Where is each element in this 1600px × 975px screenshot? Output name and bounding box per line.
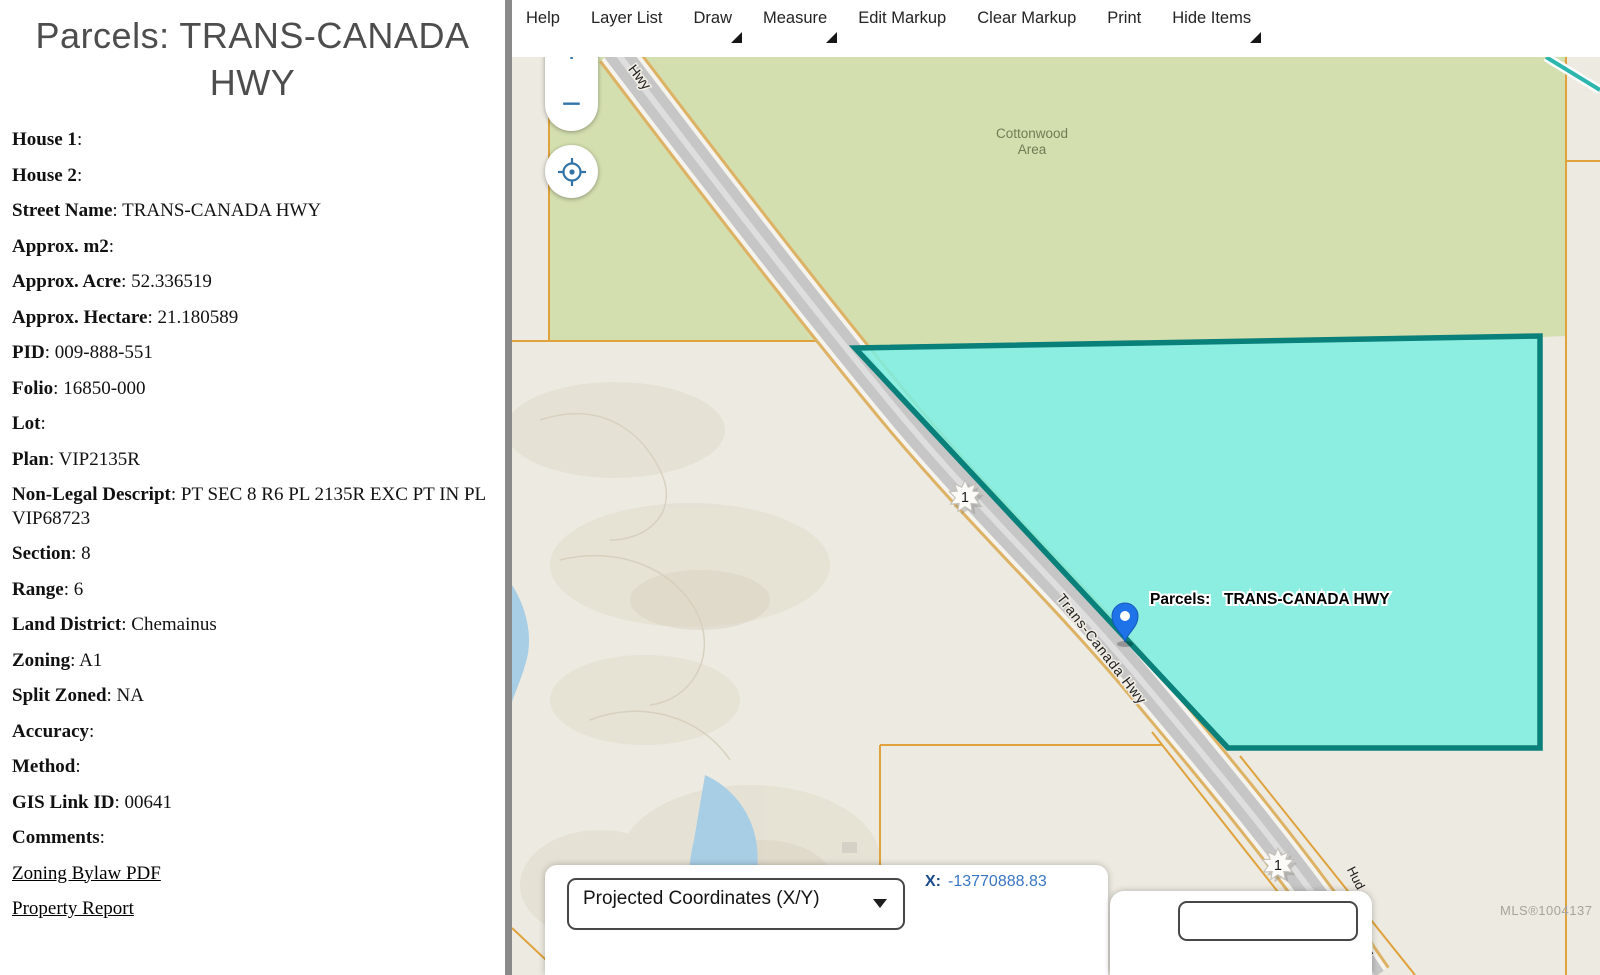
route-number: 1 xyxy=(961,490,969,506)
parcel-links: Zoning Bylaw PDFProperty Report xyxy=(12,862,493,921)
map-canvas[interactable]: 1 1 Cottonwood Area Hwy Trans-Canada Hwy… xyxy=(512,57,1600,975)
watermark: MLS®1004137 xyxy=(1500,903,1592,918)
toolbar-item-edit-markup[interactable]: Edit Markup xyxy=(858,9,946,28)
field-label: PID xyxy=(12,342,45,363)
toolbar-item-label: Hide Items xyxy=(1172,9,1251,27)
field-label: Method xyxy=(12,756,75,777)
field-row: Split Zoned: NA xyxy=(12,684,493,708)
field-label: GIS Link ID xyxy=(12,792,114,813)
field-row: Accuracy: xyxy=(12,720,493,744)
parcel-fields: House 1: House 2: Street Name: TRANS-CAN… xyxy=(12,128,493,850)
my-location-button[interactable] xyxy=(545,145,598,198)
toolbar-item-layer-list[interactable]: Layer List xyxy=(591,9,663,28)
toolbar-item-label: Help xyxy=(526,9,560,27)
field-label: Approx. Acre xyxy=(12,271,121,292)
toolbar-item-label: Clear Markup xyxy=(977,9,1076,27)
area-label: Area xyxy=(1018,142,1047,157)
building-footprint xyxy=(842,842,857,853)
secondary-panel xyxy=(1110,891,1372,975)
chevron-down-icon xyxy=(873,899,887,908)
field-label: Comments xyxy=(12,827,100,848)
field-row: House 1: xyxy=(12,128,493,152)
coordinate-system-select[interactable]: Projected Coordinates (X/Y) xyxy=(567,878,905,930)
area-label: Cottonwood xyxy=(996,126,1068,141)
map-region: HelpLayer ListDrawMeasureEdit MarkupClea… xyxy=(512,0,1600,975)
secondary-input[interactable] xyxy=(1178,901,1358,941)
field-label: Street Name xyxy=(12,200,112,221)
dropdown-caret-icon xyxy=(826,32,837,43)
toolbar-item-print[interactable]: Print xyxy=(1107,9,1141,28)
field-row: Land District: Chemainus xyxy=(12,613,493,637)
field-row: Approx. Acre: 52.336519 xyxy=(12,270,493,294)
map-toolbar: HelpLayer ListDrawMeasureEdit MarkupClea… xyxy=(512,0,1600,57)
selected-parcel-name: TRANS-CANADA HWY xyxy=(1224,591,1390,608)
field-row: Lot: xyxy=(12,412,493,436)
page-title: Parcels: TRANS-CANADA HWY xyxy=(18,12,487,106)
field-label: Land District xyxy=(12,614,121,635)
field-label: Folio xyxy=(12,378,53,399)
coordinates-panel: Projected Coordinates (X/Y) X:-13770888.… xyxy=(545,865,1108,975)
toolbar-item-help[interactable]: Help xyxy=(526,9,560,28)
field-row: House 2: xyxy=(12,164,493,188)
field-label: Range xyxy=(12,579,64,600)
map-green-area xyxy=(549,57,1566,348)
toolbar-item-label: Draw xyxy=(693,9,732,27)
x-coordinate-value: -13770888.83 xyxy=(948,873,1047,890)
field-row: Method: xyxy=(12,755,493,779)
field-row: Non-Legal Descript: PT SEC 8 R6 PL 2135R… xyxy=(12,483,493,530)
coordinate-system-value: Projected Coordinates (X/Y) xyxy=(583,888,820,910)
field-row: Range: 6 xyxy=(12,578,493,602)
field-label: Split Zoned xyxy=(12,685,107,706)
field-label: Lot xyxy=(12,413,41,434)
field-row: Street Name: TRANS-CANADA HWY xyxy=(12,199,493,223)
panel-divider xyxy=(505,0,512,975)
field-label: Approx. m2 xyxy=(12,236,109,257)
toolbar-item-label: Print xyxy=(1107,9,1141,27)
toolbar-item-draw[interactable]: Draw xyxy=(693,9,732,28)
property-report-link[interactable]: Property Report xyxy=(12,897,493,921)
field-row: PID: 009-888-551 xyxy=(12,341,493,365)
field-row: Zoning: A1 xyxy=(12,649,493,673)
dropdown-caret-icon xyxy=(731,32,742,43)
route-number: 1 xyxy=(1274,858,1282,874)
field-label: Section xyxy=(12,543,71,564)
field-label: Zoning xyxy=(12,650,70,671)
field-row: Plan: VIP2135R xyxy=(12,448,493,472)
field-row: Comments: xyxy=(12,826,493,850)
cursor-coordinates: X:-13770888.83 xyxy=(925,873,1047,891)
field-row: Approx. m2: xyxy=(12,235,493,259)
field-label: Approx. Hectare xyxy=(12,307,147,328)
field-label: House 1 xyxy=(12,129,77,150)
selected-parcel-label: Parcels: xyxy=(1150,591,1210,608)
toolbar-item-label: Edit Markup xyxy=(858,9,946,27)
field-row: GIS Link ID: 00641 xyxy=(12,791,493,815)
field-row: Folio: 16850-000 xyxy=(12,377,493,401)
field-row: Section: 8 xyxy=(12,542,493,566)
field-label: Accuracy xyxy=(12,721,89,742)
toolbar-item-label: Measure xyxy=(763,9,827,27)
field-label: Non-Legal Descript xyxy=(12,484,171,505)
toolbar-item-measure[interactable]: Measure xyxy=(763,9,827,28)
parcel-info-panel: Parcels: TRANS-CANADA HWY House 1: House… xyxy=(0,0,505,975)
dropdown-caret-icon xyxy=(1250,32,1261,43)
zoning-bylaw-pdf-link[interactable]: Zoning Bylaw PDF xyxy=(12,862,493,886)
toolbar-item-hide-items[interactable]: Hide Items xyxy=(1172,9,1251,28)
toolbar-item-clear-markup[interactable]: Clear Markup xyxy=(977,9,1076,28)
locate-crosshair-icon xyxy=(555,155,589,189)
toolbar-item-label: Layer List xyxy=(591,9,663,27)
zoom-out-button[interactable]: − xyxy=(562,87,582,121)
field-row: Approx. Hectare: 21.180589 xyxy=(12,306,493,330)
field-label: House 2 xyxy=(12,165,77,186)
field-label: Plan xyxy=(12,449,49,470)
x-coordinate-label: X: xyxy=(925,873,941,890)
